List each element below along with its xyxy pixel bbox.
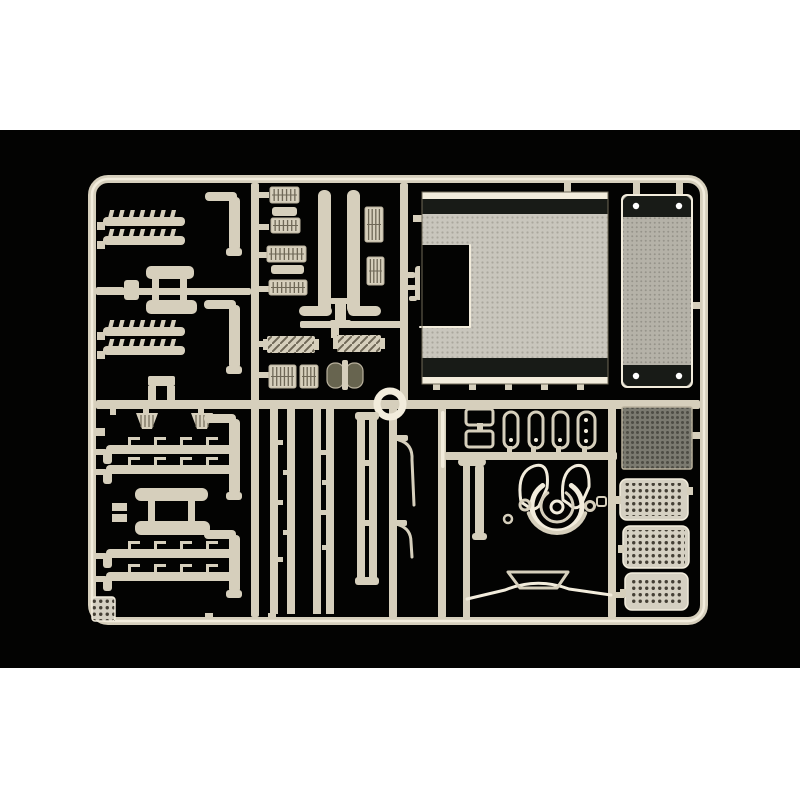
walk-plate-a bbox=[615, 479, 693, 520]
grille-bar-b bbox=[271, 265, 304, 274]
grille-step-b bbox=[271, 218, 300, 233]
sprue-photo bbox=[0, 0, 800, 800]
sprue-gate-tab bbox=[259, 192, 269, 198]
tread-plate-b bbox=[333, 335, 385, 352]
walk-plate-c bbox=[620, 573, 688, 610]
grille-step-a bbox=[270, 187, 299, 203]
visor-bar-a bbox=[135, 488, 208, 501]
sprue-runner bbox=[251, 183, 259, 617]
vent-grille-a bbox=[269, 365, 296, 388]
product-photo-page bbox=[0, 0, 800, 800]
mesh-panel bbox=[622, 407, 692, 469]
sprue-gate-tab bbox=[95, 428, 105, 436]
sprue-gate-tab bbox=[633, 183, 640, 195]
roof-panel bbox=[420, 192, 608, 384]
grille-bar-a bbox=[272, 207, 297, 216]
sprue-runner bbox=[400, 183, 408, 405]
sprue-runner bbox=[463, 455, 470, 620]
sprue-runner bbox=[300, 321, 404, 328]
sprue-gate-tab bbox=[692, 302, 702, 309]
sprue-gate-tab bbox=[676, 183, 683, 195]
tread-plate-a bbox=[263, 336, 319, 353]
grille-step-d bbox=[269, 280, 307, 295]
antenna-rod bbox=[441, 411, 445, 468]
walk-plate-b bbox=[618, 526, 689, 568]
sprue-runner bbox=[608, 404, 616, 618]
sprue-gate-tab bbox=[259, 224, 269, 230]
radiator-grille-b bbox=[367, 257, 384, 285]
grille-step-c bbox=[267, 246, 306, 262]
sprue-gate-tab bbox=[259, 372, 269, 378]
visor-bar-b bbox=[135, 521, 210, 535]
sprue-gate-tab bbox=[205, 613, 213, 619]
vent-grille-b bbox=[300, 365, 318, 388]
sprue-gate-tab bbox=[692, 432, 702, 439]
radiator-grille-a bbox=[365, 207, 383, 242]
rear-panel bbox=[622, 195, 692, 387]
sprue-gate-tab bbox=[198, 405, 204, 414]
air-cleaner-pair bbox=[327, 360, 363, 390]
corner-label bbox=[92, 597, 115, 621]
sprue-gate-tab bbox=[110, 407, 116, 415]
sprue-gate-tab bbox=[259, 286, 269, 292]
